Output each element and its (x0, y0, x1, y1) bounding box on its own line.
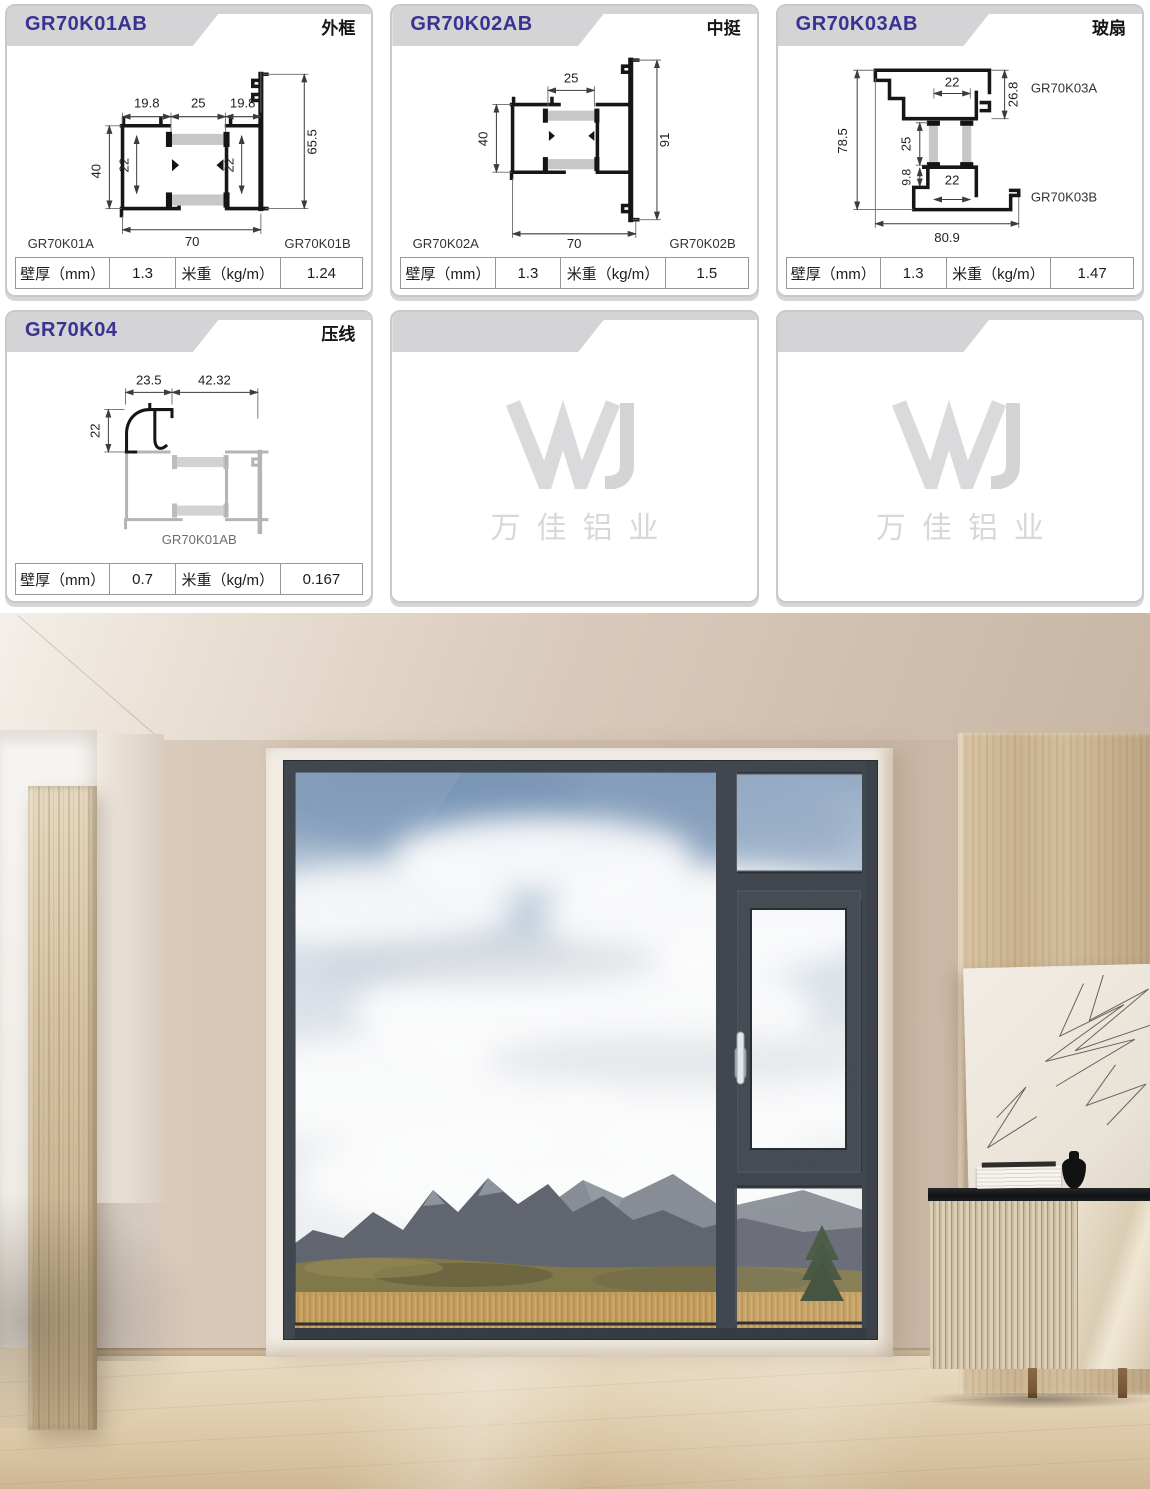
dim-65-5: 65.5 (304, 129, 319, 155)
dim-22: 22 (87, 423, 102, 438)
dim-25: 25 (191, 96, 206, 111)
meter-weight-label: 米重（kg/m） (175, 564, 280, 594)
profile-card-grid: GR70K01AB 外框 (0, 0, 1150, 603)
wall-thickness-value: 0.7 (109, 564, 175, 594)
card-gr70k02ab: GR70K02AB 中挺 25 4 (390, 4, 758, 297)
cabinet-shadow (920, 1393, 1150, 1409)
card-header (392, 312, 756, 352)
dim-22-top: 22 (944, 74, 959, 89)
profile-kind: 压线 (321, 320, 355, 345)
spec-table: 壁厚（mm） 1.3 米重（kg/m） 1.47 (786, 257, 1134, 289)
meter-weight-value: 1.5 (665, 258, 748, 288)
card-header-band (392, 312, 756, 352)
meter-weight-label: 米重（kg/m） (946, 258, 1051, 288)
dim-78-5: 78.5 (835, 128, 850, 154)
meter-weight-value: 1.24 (280, 258, 363, 288)
meter-weight-value: 0.167 (280, 564, 363, 594)
watermark: 万佳铝业 (778, 352, 1142, 592)
magazines-stack (977, 1165, 1061, 1188)
watermark: 万佳铝业 (392, 352, 756, 592)
profile-drawing-area: 25 40 91 70 GR70K02A GR70K02B (392, 46, 756, 253)
cabinet-door[interactable] (1078, 1201, 1150, 1369)
profile-kind: 外框 (321, 14, 355, 39)
card-header: GR70K02AB 中挺 (392, 6, 756, 46)
part-label-a: GR70K03A (1031, 80, 1098, 95)
part-label-a: GR70K02A (413, 236, 480, 251)
meter-weight-label: 米重（kg/m） (560, 258, 665, 288)
dim-80-9: 80.9 (934, 230, 960, 245)
profile-code: GR70K01AB (25, 13, 147, 36)
wall-thickness-value: 1.3 (109, 258, 175, 288)
cabinet-top (928, 1188, 1150, 1201)
profile-drawing-area: 22 26.8 25 9.8 22 (778, 46, 1142, 253)
dim-40: 40 (88, 164, 103, 179)
dim-22-lower: 22 (944, 172, 959, 187)
profile-code: GR70K04 (25, 319, 117, 342)
wall-thickness-value: 1.3 (495, 258, 561, 288)
dim-22-right: 22 (222, 158, 237, 173)
profile-drawing-area: 19.8 25 19.8 40 22 22 65.5 70 GR (7, 46, 371, 253)
wall-thickness-label: 壁厚（mm） (787, 258, 880, 288)
card-empty-1: 万佳铝业 (390, 310, 758, 603)
part-label-b: GR70K01B (284, 236, 351, 251)
spec-table: 壁厚（mm） 1.3 米重（kg/m） 1.24 (15, 257, 363, 289)
spec-table: 壁厚（mm） 0.7 米重（kg/m） 0.167 (15, 563, 363, 595)
card-empty-2: 万佳铝业 (776, 310, 1144, 603)
part-label-a: GR70K01A (28, 236, 95, 251)
dim-91: 91 (657, 133, 672, 148)
dim-70: 70 (185, 234, 200, 249)
catalog-page: GR70K01AB 外框 (0, 0, 1150, 1489)
dim-25: 25 (898, 137, 913, 152)
wall-thickness-label: 壁厚（mm） (16, 564, 109, 594)
dim-22-left: 22 (117, 158, 132, 173)
card-header: GR70K01AB 外框 (7, 6, 371, 46)
dim-23-5: 23.5 (136, 372, 162, 387)
glass-sash-profile-drawing: 22 26.8 25 9.8 22 (778, 46, 1142, 253)
wj-logo-icon (885, 397, 1035, 489)
outer-frame-profile-drawing: 19.8 25 19.8 40 22 22 65.5 70 GR (7, 46, 371, 253)
card-gr70k03ab: GR70K03AB 玻扇 22 26.8 25 (776, 4, 1144, 297)
spec-table: 壁厚（mm） 1.3 米重（kg/m） 1.5 (400, 257, 748, 289)
profile-code: GR70K02AB (410, 13, 532, 36)
window-frame (283, 760, 878, 1340)
wall-thickness-value: 1.3 (880, 258, 946, 288)
aluminum-window (283, 760, 878, 1340)
meter-weight-value: 1.47 (1050, 258, 1133, 288)
card-header: GR70K04 压线 (7, 312, 371, 352)
wall-thickness-label: 壁厚（mm） (16, 258, 109, 288)
ceiling (0, 613, 1150, 741)
left-corner-shadow (0, 1188, 210, 1428)
dim-40: 40 (476, 132, 491, 147)
dim-19-8-right: 19.8 (230, 96, 256, 111)
card-header-band (778, 312, 1142, 352)
part-label-b: GR70K02B (670, 236, 737, 251)
reference-profile-label: GR70K01AB (162, 532, 237, 547)
watermark-company-name: 万佳铝业 (860, 503, 1060, 547)
dim-42-32: 42.32 (198, 372, 231, 387)
card-header: GR70K03AB 玻扇 (778, 6, 1142, 46)
card-gr70k01ab: GR70K01AB 外框 (5, 4, 373, 297)
profile-kind: 中挺 (707, 14, 741, 39)
mullion-profile-drawing: 25 40 91 70 GR70K02A GR70K02B (392, 46, 756, 253)
cabinet-fluted-front (930, 1201, 1078, 1369)
wall-thickness-label: 壁厚（mm） (401, 258, 494, 288)
watermark-company-name: 万佳铝业 (474, 503, 674, 547)
dim-19-8-left: 19.8 (134, 96, 160, 111)
meter-weight-label: 米重（kg/m） (175, 258, 280, 288)
dim-9-8: 9.8 (899, 169, 913, 186)
profile-code: GR70K03AB (796, 13, 918, 36)
part-label-b: GR70K03B (1031, 190, 1098, 205)
dim-26-8: 26.8 (1005, 82, 1020, 108)
cabinet-body (930, 1201, 1150, 1369)
profile-drawing-area: 23.5 42.32 22 GR70K01AB (7, 352, 371, 559)
profile-kind: 玻扇 (1092, 14, 1126, 39)
card-gr70k04: GR70K04 压线 (5, 310, 373, 603)
glazing-bead-profile-drawing: 23.5 42.32 22 GR70K01AB (7, 352, 371, 559)
interior-photo (0, 613, 1150, 1489)
dim-70: 70 (567, 236, 582, 251)
dim-25: 25 (564, 70, 579, 85)
wj-logo-icon (499, 397, 649, 489)
card-header (778, 312, 1142, 352)
